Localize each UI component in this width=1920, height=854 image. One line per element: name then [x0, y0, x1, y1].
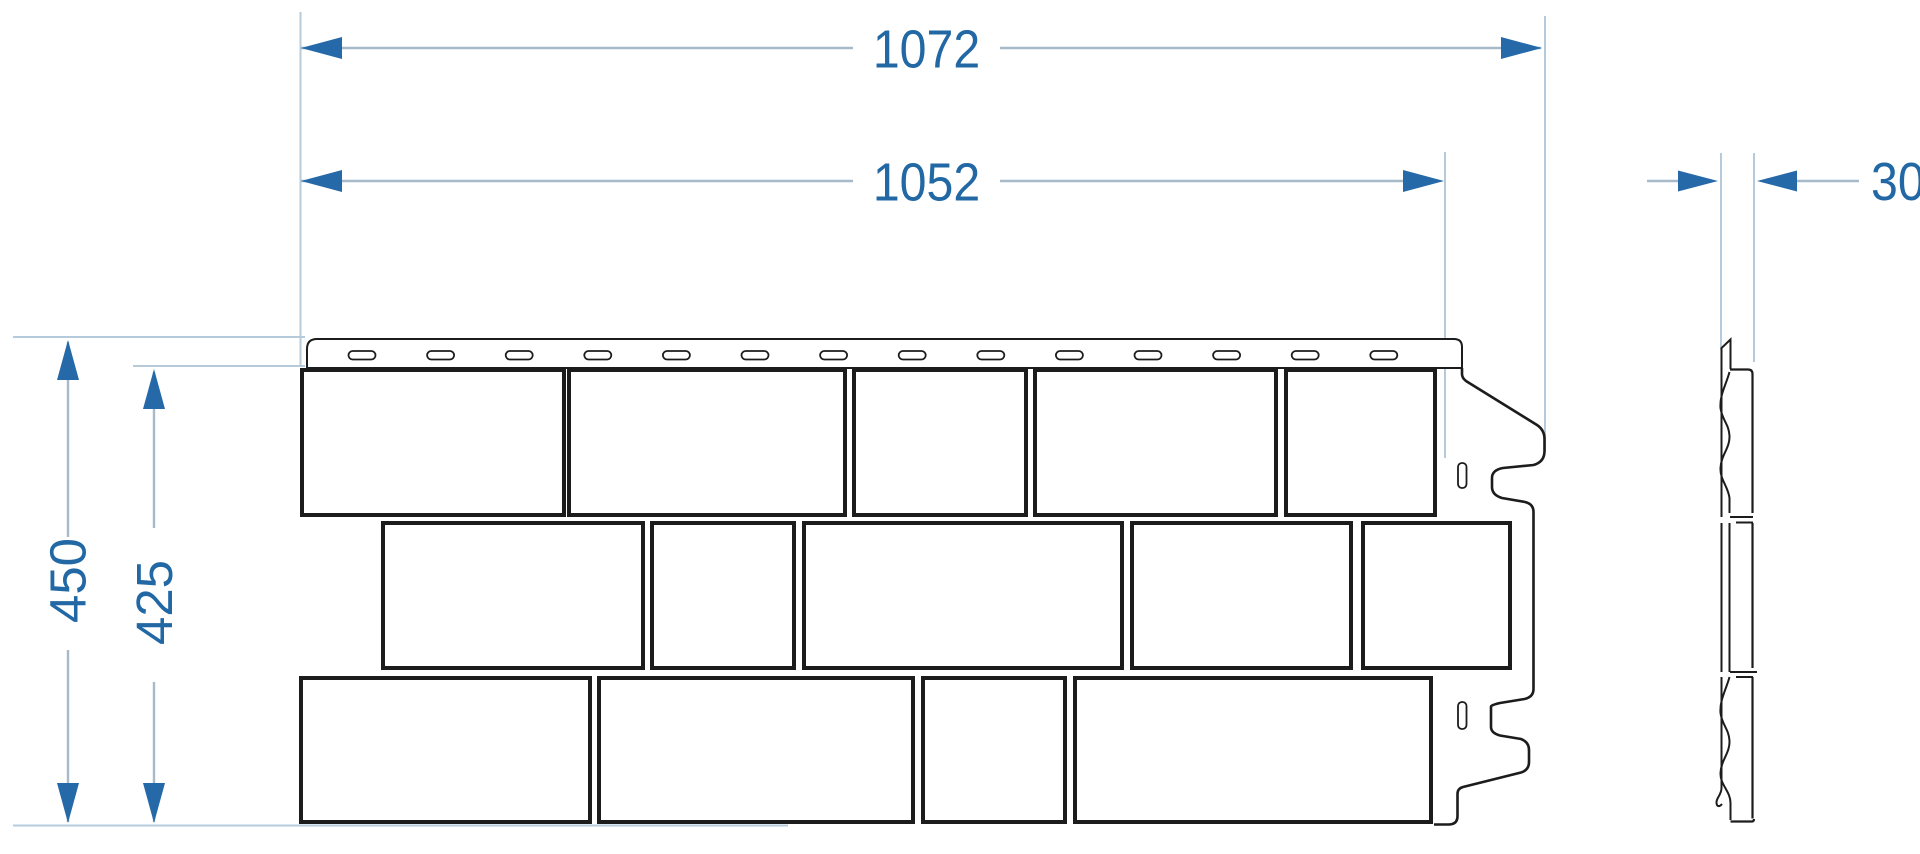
svg-text:450: 450	[40, 538, 97, 623]
svg-text:1072: 1072	[873, 19, 980, 79]
svg-text:425: 425	[126, 560, 183, 645]
svg-text:1052: 1052	[873, 152, 980, 212]
svg-text:30: 30	[1871, 151, 1920, 211]
